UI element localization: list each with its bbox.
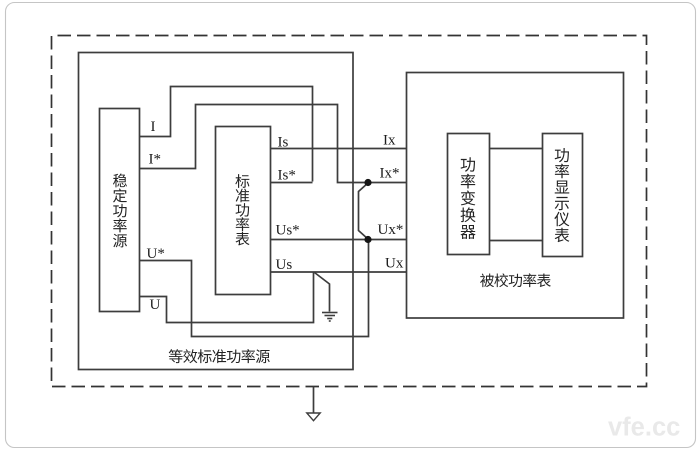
svg-text:Ix*: Ix* [380, 166, 400, 182]
svg-text:Is*: Is* [278, 167, 296, 183]
svg-text:Us: Us [276, 257, 293, 273]
svg-text:I: I [151, 119, 156, 135]
svg-text:Ux*: Ux* [378, 222, 404, 238]
svg-text:Ux: Ux [385, 255, 404, 271]
svg-text:I*: I* [149, 152, 162, 168]
svg-text:Is: Is [278, 134, 289, 150]
svg-text:U: U [150, 297, 161, 313]
svg-text:Ix: Ix [383, 133, 396, 149]
svg-text:vfe.cc: vfe.cc [608, 414, 680, 442]
svg-text:Us*: Us* [276, 223, 300, 239]
svg-text:U*: U* [147, 246, 165, 262]
